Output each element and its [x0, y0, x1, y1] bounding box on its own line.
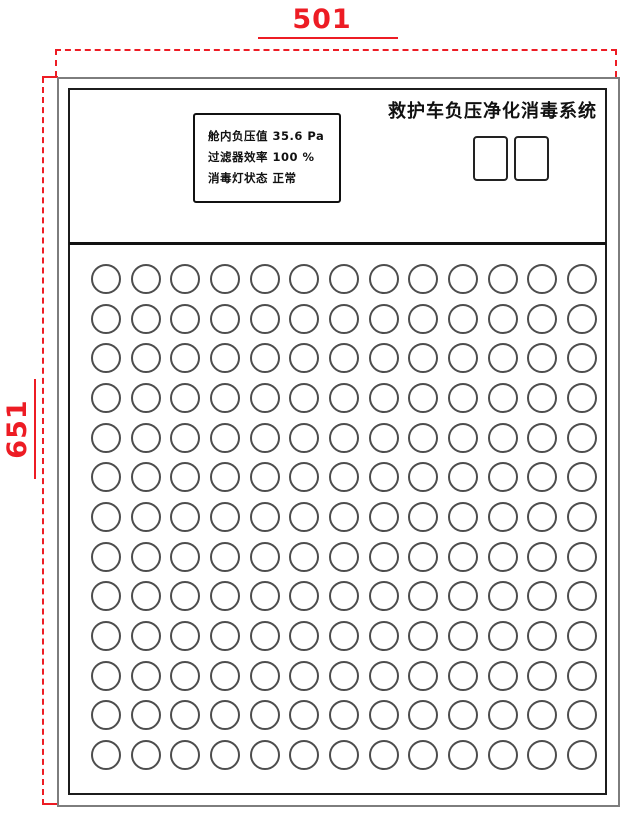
vent-hole — [567, 700, 597, 730]
vent-hole-cell — [284, 616, 324, 656]
vent-hole — [131, 462, 161, 492]
vent-hole — [369, 343, 399, 373]
vent-hole-cell — [562, 696, 602, 736]
lamp-status-value: 正常 — [273, 171, 297, 185]
vent-hole — [488, 700, 518, 730]
vent-hole-cell — [523, 656, 563, 696]
vent-hole-cell — [483, 696, 523, 736]
vent-hole — [448, 661, 478, 691]
vent-hole — [408, 462, 438, 492]
vent-hole — [488, 304, 518, 334]
vent-hole-cell — [165, 497, 205, 537]
vent-hole — [289, 383, 319, 413]
vent-hole-cell — [404, 378, 444, 418]
status-display-screen: 舱内负压值 35.6 Pa 过滤器效率 100 % 消毒灯状态 正常 — [193, 113, 341, 203]
vent-hole — [131, 581, 161, 611]
vent-hole — [131, 740, 161, 770]
vent-hole-cell — [404, 259, 444, 299]
vent-hole-cell — [245, 259, 285, 299]
vent-hole-cell — [523, 259, 563, 299]
vent-hole-cell — [245, 299, 285, 339]
vent-hole — [527, 700, 557, 730]
indicator-button-1 — [473, 136, 508, 181]
vent-hole — [210, 423, 240, 453]
width-dimension-extension-left — [55, 49, 57, 77]
vent-hole-cell — [523, 457, 563, 497]
vent-hole — [170, 700, 200, 730]
vent-hole — [131, 502, 161, 532]
vent-hole-cell — [126, 259, 166, 299]
vent-hole-cell — [205, 378, 245, 418]
vent-hole — [250, 462, 280, 492]
vent-hole-cell — [562, 656, 602, 696]
vent-hole-cell — [404, 537, 444, 577]
vent-hole — [131, 264, 161, 294]
vent-hole — [488, 740, 518, 770]
vent-hole-cell — [165, 616, 205, 656]
vent-hole-cell — [404, 497, 444, 537]
vent-hole — [408, 264, 438, 294]
vent-hole-cell — [364, 537, 404, 577]
vent-hole — [170, 621, 200, 651]
vent-hole-cell — [86, 457, 126, 497]
vent-hole — [408, 661, 438, 691]
vent-hole-cell — [523, 735, 563, 775]
vent-hole — [527, 343, 557, 373]
vent-hole-cell — [86, 259, 126, 299]
vent-hole-cell — [562, 497, 602, 537]
vent-hole-cell — [126, 616, 166, 656]
vent-hole-cell — [86, 735, 126, 775]
vent-hole — [250, 264, 280, 294]
vent-hole-cell — [364, 457, 404, 497]
vent-hole-cell — [86, 537, 126, 577]
vent-hole — [250, 304, 280, 334]
vent-hole-cell — [165, 378, 205, 418]
vent-hole — [289, 423, 319, 453]
vent-hole — [408, 304, 438, 334]
vent-hole-cell — [86, 378, 126, 418]
vent-hole — [289, 264, 319, 294]
vent-hole-cell — [364, 577, 404, 617]
vent-hole-cell — [404, 656, 444, 696]
vent-hole-cell — [483, 299, 523, 339]
vent-hole-cell — [523, 696, 563, 736]
vent-hole-cell — [205, 735, 245, 775]
vent-hole-cell — [523, 616, 563, 656]
vent-hole — [567, 502, 597, 532]
width-dimension-line — [55, 49, 617, 51]
vent-hole-cell — [324, 735, 364, 775]
vent-hole-cell — [562, 418, 602, 458]
vent-hole-cell — [284, 696, 324, 736]
vent-hole — [210, 581, 240, 611]
vent-hole — [289, 502, 319, 532]
vent-hole-cell — [126, 378, 166, 418]
vent-hole — [210, 502, 240, 532]
vent-hole-cell — [562, 338, 602, 378]
vent-hole — [170, 581, 200, 611]
vent-hole-cell — [245, 338, 285, 378]
vent-hole-cell — [443, 735, 483, 775]
vent-hole-cell — [443, 537, 483, 577]
vent-hole — [131, 700, 161, 730]
vent-hole — [448, 581, 478, 611]
vent-hole-cell — [324, 457, 364, 497]
vent-hole-cell — [126, 537, 166, 577]
vent-hole-cell — [483, 259, 523, 299]
vent-hole-cell — [126, 497, 166, 537]
vent-hole — [91, 264, 121, 294]
vent-hole-cell — [324, 418, 364, 458]
vent-hole-cell — [205, 656, 245, 696]
vent-hole — [567, 581, 597, 611]
vent-hole — [369, 423, 399, 453]
vent-hole-cell — [364, 497, 404, 537]
vent-hole — [527, 423, 557, 453]
vent-hole — [488, 343, 518, 373]
vent-hole — [488, 621, 518, 651]
vent-hole — [210, 542, 240, 572]
vent-hole-cell — [483, 537, 523, 577]
vent-hole — [250, 740, 280, 770]
display-line-pressure: 舱内负压值 35.6 Pa — [208, 126, 339, 147]
vent-hole-cell — [126, 656, 166, 696]
vent-hole-cell — [284, 338, 324, 378]
vent-hole — [91, 740, 121, 770]
vent-hole — [369, 304, 399, 334]
vent-hole — [408, 383, 438, 413]
vent-hole-cell — [523, 299, 563, 339]
vent-hole-cell — [364, 656, 404, 696]
vent-hole-cell — [404, 299, 444, 339]
vent-hole-cell — [483, 616, 523, 656]
vent-hole — [250, 700, 280, 730]
vent-hole-cell — [205, 338, 245, 378]
vent-hole — [369, 264, 399, 294]
height-dimension-tick-top — [42, 76, 58, 78]
display-line-filter: 过滤器效率 100 % — [208, 147, 339, 168]
vent-hole — [527, 462, 557, 492]
width-dimension-underline — [258, 37, 398, 39]
vent-hole-cell — [165, 418, 205, 458]
vent-hole — [488, 462, 518, 492]
vent-hole — [329, 502, 359, 532]
vent-hole-cell — [165, 577, 205, 617]
vent-hole — [131, 661, 161, 691]
vent-hole — [448, 462, 478, 492]
filter-label: 过滤器效率 — [208, 150, 268, 164]
vent-hole — [527, 581, 557, 611]
vent-hole-cell — [86, 497, 126, 537]
vent-hole — [289, 740, 319, 770]
vent-hole-cell — [126, 457, 166, 497]
vent-hole-cell — [205, 577, 245, 617]
vent-hole — [91, 423, 121, 453]
vent-hole-cell — [483, 338, 523, 378]
vent-hole — [329, 423, 359, 453]
vent-hole — [408, 621, 438, 651]
vent-hole-cell — [165, 656, 205, 696]
vent-hole-cell — [324, 696, 364, 736]
vent-hole — [210, 621, 240, 651]
vent-hole — [567, 423, 597, 453]
vent-hole — [210, 462, 240, 492]
vent-hole-cell — [324, 497, 364, 537]
vent-hole-cell — [562, 577, 602, 617]
vent-hole-cell — [165, 457, 205, 497]
vent-hole — [369, 542, 399, 572]
vent-hole — [170, 304, 200, 334]
vent-hole-cell — [205, 497, 245, 537]
vent-hole-cell — [404, 457, 444, 497]
vent-hole-cell — [284, 418, 324, 458]
vent-hole-cell — [165, 537, 205, 577]
pressure-label: 舱内负压值 — [208, 129, 268, 143]
vent-hole-cell — [284, 457, 324, 497]
vent-hole — [329, 542, 359, 572]
vent-hole-cell — [443, 457, 483, 497]
vent-hole — [567, 740, 597, 770]
vent-hole-cell — [284, 299, 324, 339]
vent-hole-cell — [523, 537, 563, 577]
vent-hole — [170, 383, 200, 413]
vent-hole-cell — [165, 338, 205, 378]
vent-hole-cell — [523, 497, 563, 537]
vent-hole-cell — [245, 696, 285, 736]
vent-hole — [250, 621, 280, 651]
vent-hole-cell — [324, 378, 364, 418]
vent-hole — [527, 621, 557, 651]
vent-hole — [408, 700, 438, 730]
vent-hole-cell — [523, 338, 563, 378]
vent-hole — [448, 304, 478, 334]
vent-hole — [329, 304, 359, 334]
vent-hole-cell — [205, 259, 245, 299]
engineering-drawing: { "dimensions": { "width_label": "501", … — [0, 0, 643, 837]
vent-hole — [289, 304, 319, 334]
vent-hole-cell — [324, 656, 364, 696]
vent-hole — [488, 502, 518, 532]
vent-hole — [448, 502, 478, 532]
vent-hole-cell — [483, 656, 523, 696]
vent-hole — [567, 304, 597, 334]
vent-hole-cell — [284, 577, 324, 617]
vent-hole — [210, 383, 240, 413]
vent-hole — [210, 700, 240, 730]
vent-hole-cell — [483, 378, 523, 418]
cabinet-inner-face: 救护车负压净化消毒系统 舱内负压值 35.6 Pa 过滤器效率 100 % 消毒… — [68, 88, 607, 795]
vent-hole — [289, 462, 319, 492]
width-dimension-label: 501 — [272, 4, 372, 35]
vent-hole-cell — [562, 616, 602, 656]
vent-hole — [369, 502, 399, 532]
vent-hole — [289, 661, 319, 691]
lamp-status-label: 消毒灯状态 — [208, 171, 268, 185]
vent-hole — [170, 502, 200, 532]
vent-hole-cell — [284, 537, 324, 577]
indicator-button-2 — [514, 136, 549, 181]
vent-hole-cell — [364, 696, 404, 736]
vent-hole-cell — [523, 577, 563, 617]
vent-hole — [488, 264, 518, 294]
vent-hole — [329, 621, 359, 651]
vent-hole-cell — [562, 735, 602, 775]
height-dimension-label: 651 — [2, 379, 36, 479]
filter-value: 100 % — [273, 150, 315, 164]
vent-hole — [488, 581, 518, 611]
vent-hole — [250, 383, 280, 413]
vent-hole-cell — [483, 497, 523, 537]
vent-hole-cell — [404, 338, 444, 378]
vent-hole-cell — [404, 577, 444, 617]
vent-hole-cell — [443, 299, 483, 339]
vent-hole — [289, 343, 319, 373]
vent-hole-cell — [86, 656, 126, 696]
vent-hole-cell — [86, 577, 126, 617]
vent-hole — [488, 423, 518, 453]
vent-hole — [250, 581, 280, 611]
vent-hole-cell — [324, 299, 364, 339]
vent-hole — [91, 383, 121, 413]
vent-hole-cell — [324, 338, 364, 378]
vent-hole — [91, 700, 121, 730]
vent-hole — [527, 740, 557, 770]
vent-hole — [408, 740, 438, 770]
vent-hole-cell — [562, 378, 602, 418]
vent-hole — [91, 661, 121, 691]
vent-hole — [131, 304, 161, 334]
vent-hole-cell — [245, 577, 285, 617]
vent-hole — [488, 383, 518, 413]
vent-hole — [91, 304, 121, 334]
vent-hole-cell — [364, 735, 404, 775]
vent-hole — [250, 423, 280, 453]
vent-hole-cell — [205, 696, 245, 736]
vent-hole-cell — [86, 418, 126, 458]
vent-hole — [488, 542, 518, 572]
vent-hole-cell — [443, 378, 483, 418]
vent-hole — [329, 343, 359, 373]
vent-hole — [329, 462, 359, 492]
vent-hole — [567, 383, 597, 413]
vent-hole — [210, 661, 240, 691]
vent-hole-cell — [443, 696, 483, 736]
vent-hole-cell — [86, 696, 126, 736]
vent-hole-cell — [443, 497, 483, 537]
vent-hole — [488, 661, 518, 691]
vent-hole-cell — [126, 418, 166, 458]
vent-hole — [250, 343, 280, 373]
vent-hole-cell — [364, 338, 404, 378]
vent-hole-cell — [483, 735, 523, 775]
system-title: 救护车负压净化消毒系统 — [388, 97, 597, 123]
vent-hole — [408, 423, 438, 453]
vent-hole — [567, 661, 597, 691]
vent-hole-cell — [245, 497, 285, 537]
vent-hole — [250, 542, 280, 572]
vent-hole — [289, 581, 319, 611]
vent-hole-cell — [324, 537, 364, 577]
vent-hole-cell — [523, 418, 563, 458]
vent-hole — [369, 383, 399, 413]
vent-hole-cell — [86, 616, 126, 656]
vent-hole — [210, 304, 240, 334]
vent-hole-cell — [165, 735, 205, 775]
vent-hole — [448, 542, 478, 572]
vent-hole-cell — [205, 299, 245, 339]
vent-hole-cell — [284, 378, 324, 418]
vent-hole — [289, 621, 319, 651]
vent-hole — [408, 502, 438, 532]
display-line-lamp: 消毒灯状态 正常 — [208, 168, 339, 189]
vent-hole — [210, 343, 240, 373]
vent-hole-cell — [284, 497, 324, 537]
vent-hole — [91, 502, 121, 532]
vent-hole-cell — [324, 577, 364, 617]
vent-hole — [131, 343, 161, 373]
vent-hole — [527, 304, 557, 334]
vent-hole — [289, 542, 319, 572]
vent-hole-cell — [324, 616, 364, 656]
vent-hole — [369, 700, 399, 730]
vent-hole — [369, 462, 399, 492]
vent-hole — [329, 264, 359, 294]
height-dimension-tick-bottom — [42, 803, 58, 805]
vent-hole-cell — [245, 378, 285, 418]
vent-hole-cell — [404, 735, 444, 775]
vent-hole-cell — [443, 259, 483, 299]
vent-hole — [170, 343, 200, 373]
vent-hole-cell — [165, 299, 205, 339]
vent-hole — [131, 621, 161, 651]
vent-hole-cell — [483, 577, 523, 617]
vent-hole-cell — [443, 656, 483, 696]
vent-hole-cell — [404, 616, 444, 656]
vent-hole — [170, 423, 200, 453]
vent-hole-cell — [443, 577, 483, 617]
panel-separator-line — [69, 242, 606, 245]
vent-hole — [170, 661, 200, 691]
vent-hole — [210, 264, 240, 294]
vent-hole — [567, 542, 597, 572]
vent-hole — [369, 740, 399, 770]
vent-hole-cell — [443, 338, 483, 378]
vent-hole-cell — [245, 457, 285, 497]
vent-hole — [527, 661, 557, 691]
vent-hole — [408, 343, 438, 373]
vent-hole-cell — [126, 299, 166, 339]
vent-hole — [408, 542, 438, 572]
vent-hole-cell — [364, 418, 404, 458]
vent-hole — [527, 383, 557, 413]
vent-hole-cell — [364, 378, 404, 418]
vent-hole-grid — [86, 259, 602, 775]
vent-hole — [250, 502, 280, 532]
vent-hole — [329, 740, 359, 770]
vent-hole-cell — [562, 299, 602, 339]
vent-hole-cell — [364, 616, 404, 656]
vent-hole — [91, 621, 121, 651]
vent-hole — [567, 264, 597, 294]
vent-hole-cell — [284, 735, 324, 775]
vent-hole — [448, 264, 478, 294]
vent-hole — [170, 542, 200, 572]
vent-hole — [527, 264, 557, 294]
vent-hole — [131, 383, 161, 413]
vent-hole-cell — [523, 378, 563, 418]
vent-hole-cell — [126, 338, 166, 378]
